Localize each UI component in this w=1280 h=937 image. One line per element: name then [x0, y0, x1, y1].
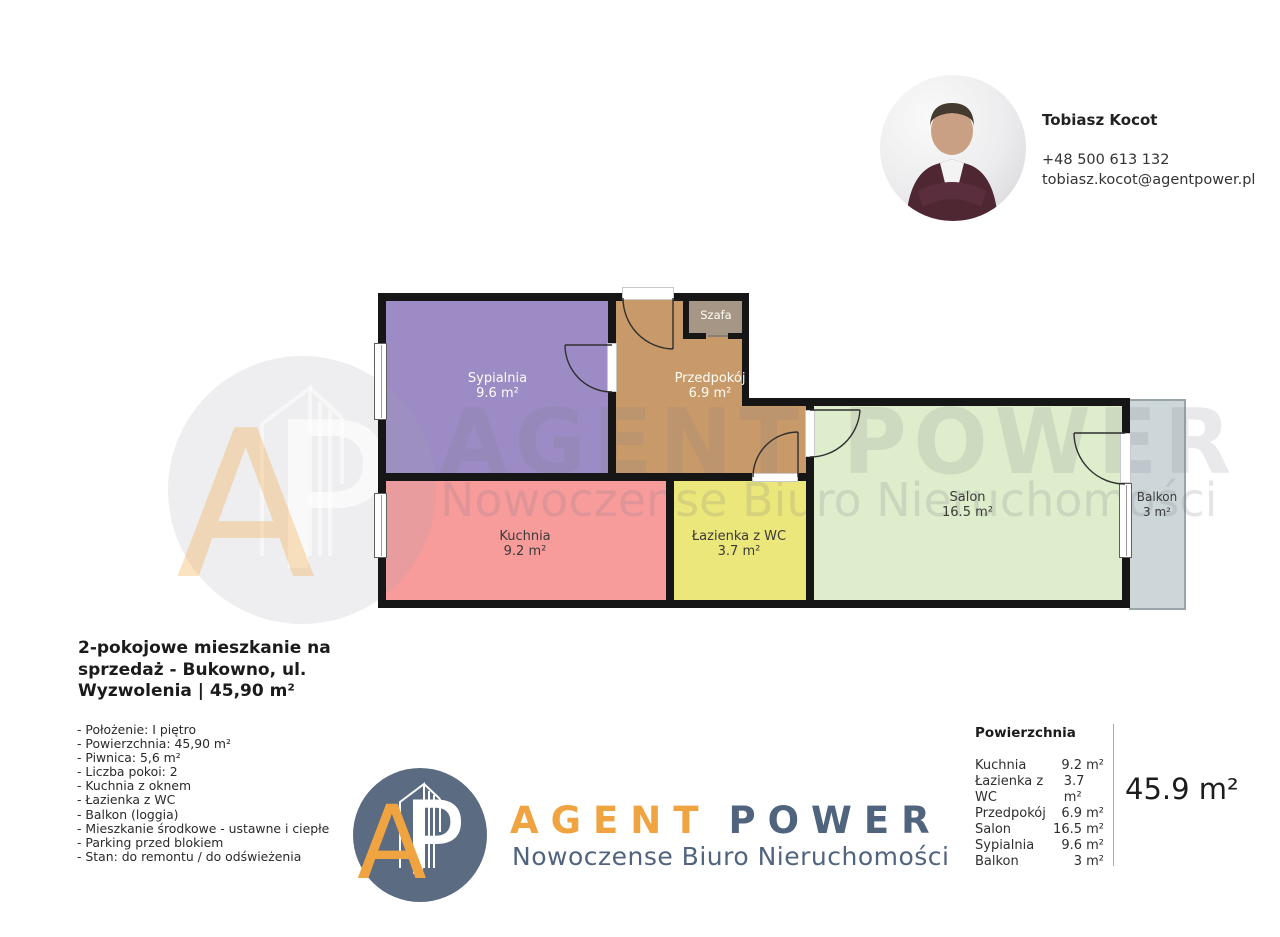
title-line: Wyzwolenia | 45,90 m²: [78, 681, 331, 703]
label-lazienka: Łazienka z WC 3.7 m²: [670, 530, 808, 559]
wall-segment: [378, 600, 1129, 608]
area-summary: Powierzchnia Kuchnia9.2 m² Łazienka z WC…: [975, 725, 1104, 870]
floor-plan: P A AGENT POWER Nowoczense Biuro Nieruch…: [370, 285, 1200, 630]
feature-item: - Parking przed blokiem: [77, 836, 329, 850]
agent-info: Tobiasz Kocot +48 500 613 132 tobiasz.ko…: [1042, 111, 1255, 188]
door-opening-salon: [805, 410, 815, 457]
feature-item: - Stan: do remontu / do odświeżenia: [77, 850, 329, 864]
wall-segment: [742, 398, 1129, 406]
agency-tagline: Nowoczense Biuro Nieruchomości: [512, 842, 950, 871]
feature-item: - Mieszkanie środkowe - ustawne i ciepłe: [77, 822, 329, 836]
wall-segment: [608, 293, 616, 343]
wall-segment: [378, 473, 752, 481]
label-balkon: Balkon 3 m²: [1127, 490, 1187, 519]
wall-segment: [683, 333, 706, 339]
wall-segment: [806, 398, 814, 410]
door-opening-balkon: [1120, 433, 1131, 483]
watermark-letter-a: A: [176, 388, 316, 624]
door-opening-sypialnia: [607, 343, 617, 392]
title-line: sprzedaż - Bukowno, ul.: [78, 660, 331, 682]
label-przedpokoj: Przedpokój 6.9 m²: [625, 372, 795, 401]
wall-segment: [378, 420, 386, 493]
summary-header: Powierzchnia: [975, 725, 1104, 741]
brand-agent: AGENT: [510, 799, 710, 842]
summary-row: Przedpokój6.9 m²: [975, 806, 1104, 822]
label-sypialnia: Sypialnia 9.6 m²: [410, 372, 585, 401]
label-kuchnia: Kuchnia 9.2 m²: [430, 530, 620, 559]
summary-divider: [1113, 724, 1114, 866]
summary-row: Balkon3 m²: [975, 854, 1104, 870]
door-opening-lazienka: [752, 473, 798, 482]
label-szafa: Szafa: [686, 308, 746, 323]
summary-total: 45.9 m²: [1125, 772, 1239, 806]
room-przedpokoj-lower: [612, 398, 810, 477]
listing-features: - Położenie: I piętro - Powierzchnia: 45…: [77, 723, 329, 864]
wall-segment: [728, 333, 745, 339]
label-salon: Salon 16.5 m²: [880, 491, 1055, 520]
summary-row: Łazienka z WC3.7 m²: [975, 774, 1104, 806]
feature-item: - Łazienka z WC: [77, 793, 329, 807]
agency-logo-monogram: P A: [353, 768, 487, 902]
logo-letter-a: A: [357, 784, 427, 902]
summary-rows: Kuchnia9.2 m² Łazienka z WC3.7 m² Przedp…: [975, 758, 1104, 870]
agency-logo-text: AGENTPOWER: [510, 799, 942, 842]
brand-power: POWER: [728, 799, 941, 842]
window: [374, 343, 387, 420]
watermark-letter-p: P: [268, 380, 391, 617]
feature-item: - Balkon (loggia): [77, 808, 329, 822]
agent-email: tobiasz.kocot@agentpower.pl: [1042, 172, 1255, 188]
agent-phone: +48 500 613 132: [1042, 152, 1255, 168]
listing-title: 2-pokojowe mieszkanie na sprzedaż - Buko…: [78, 638, 331, 703]
feature-item: - Piwnica: 5,6 m²: [77, 751, 329, 765]
summary-row: Salon16.5 m²: [975, 822, 1104, 838]
page: Tobiasz Kocot +48 500 613 132 tobiasz.ko…: [0, 0, 1280, 937]
wall-segment: [1122, 558, 1130, 608]
door-opening-entrance: [622, 287, 674, 300]
wall-segment: [1122, 398, 1130, 433]
title-line: 2-pokojowe mieszkanie na: [78, 638, 331, 660]
summary-row: Kuchnia9.2 m²: [975, 758, 1104, 774]
agent-name: Tobiasz Kocot: [1042, 111, 1255, 129]
wall-segment: [608, 392, 616, 481]
feature-item: - Powierzchnia: 45,90 m²: [77, 737, 329, 751]
agent-photo: [880, 75, 1026, 221]
wall-segment: [378, 293, 623, 301]
agent-silhouette: [880, 75, 1026, 221]
feature-item: - Położenie: I piętro: [77, 723, 329, 737]
feature-item: - Kuchnia z oknem: [77, 779, 329, 793]
feature-item: - Liczba pokoi: 2: [77, 765, 329, 779]
wall-segment: [378, 293, 386, 343]
window: [374, 493, 387, 558]
summary-row: Sypialnia9.6 m²: [975, 838, 1104, 854]
agency-logo: P A: [353, 768, 487, 902]
szafa-opening-line: [708, 335, 728, 337]
